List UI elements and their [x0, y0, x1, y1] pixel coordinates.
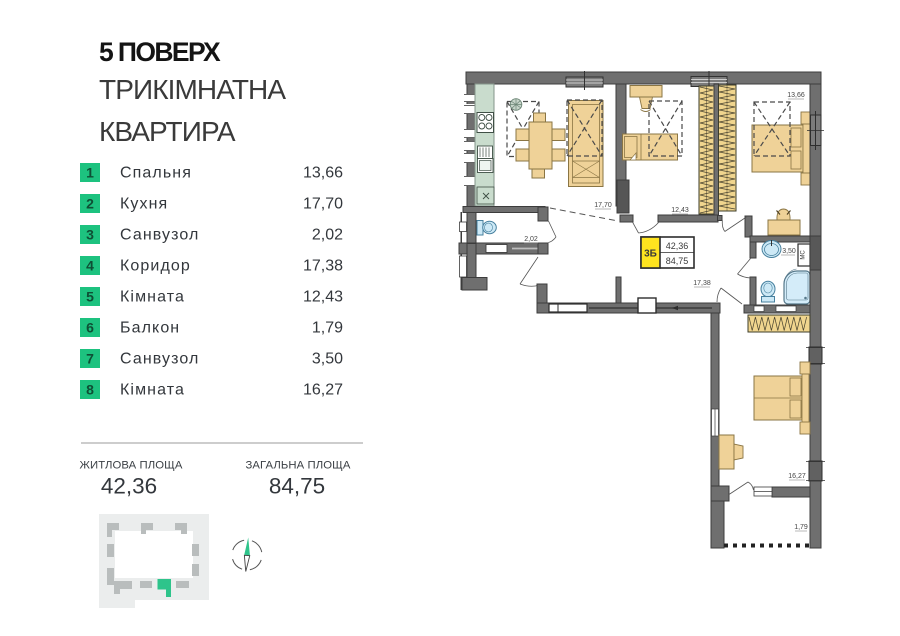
svg-text:17,38: 17,38 — [693, 280, 711, 287]
svg-text:Кімната: Кімната — [120, 289, 185, 306]
svg-text:МС: МС — [801, 250, 807, 260]
svg-text:1,79: 1,79 — [312, 320, 343, 337]
svg-text:Спальня: Спальня — [120, 165, 192, 182]
svg-text:42,36: 42,36 — [101, 474, 157, 499]
svg-text:17,38: 17,38 — [303, 258, 343, 275]
svg-text:6: 6 — [86, 320, 94, 336]
svg-text:5 ПОВЕРХ: 5 ПОВЕРХ — [99, 37, 221, 67]
svg-text:13,66: 13,66 — [303, 165, 343, 182]
svg-text:5: 5 — [86, 289, 94, 305]
svg-text:84,75: 84,75 — [269, 474, 325, 499]
svg-text:13,66: 13,66 — [787, 92, 805, 99]
svg-text:3,50: 3,50 — [782, 248, 796, 255]
svg-text:2,02: 2,02 — [312, 227, 343, 244]
svg-text:1,79: 1,79 — [794, 524, 808, 531]
svg-text:12,43: 12,43 — [303, 289, 343, 306]
svg-text:2,02: 2,02 — [524, 236, 538, 243]
svg-text:1: 1 — [86, 165, 94, 181]
svg-text:84,75: 84,75 — [666, 256, 689, 266]
svg-text:Коридор: Коридор — [120, 258, 191, 275]
svg-text:12,43: 12,43 — [671, 207, 689, 214]
svg-text:7: 7 — [86, 351, 94, 367]
svg-text:ЖИТЛОВА ПЛОЩА: ЖИТЛОВА ПЛОЩА — [80, 460, 183, 472]
svg-text:Санвузол: Санвузол — [120, 351, 199, 368]
svg-text:42,36: 42,36 — [666, 241, 689, 251]
svg-text:17,70: 17,70 — [594, 202, 612, 209]
svg-text:2: 2 — [86, 196, 94, 212]
svg-text:4: 4 — [86, 258, 94, 274]
svg-text:17,70: 17,70 — [303, 196, 343, 213]
svg-text:Кімната: Кімната — [120, 382, 185, 399]
svg-text:3Б: 3Б — [644, 249, 657, 260]
svg-text:Кухня: Кухня — [120, 196, 168, 213]
svg-text:ЗАГАЛЬНА ПЛОЩА: ЗАГАЛЬНА ПЛОЩА — [245, 460, 350, 472]
svg-text:3: 3 — [86, 227, 94, 243]
svg-text:3,50: 3,50 — [312, 351, 343, 368]
svg-text:ТРИКІМНАТНА: ТРИКІМНАТНА — [99, 74, 286, 105]
svg-text:КВАРТИРА: КВАРТИРА — [99, 116, 236, 147]
svg-text:Балкон: Балкон — [120, 320, 180, 337]
svg-text:Санвузол: Санвузол — [120, 227, 199, 244]
svg-text:8: 8 — [86, 382, 94, 398]
svg-text:16,27: 16,27 — [788, 473, 806, 480]
svg-text:16,27: 16,27 — [303, 382, 343, 399]
